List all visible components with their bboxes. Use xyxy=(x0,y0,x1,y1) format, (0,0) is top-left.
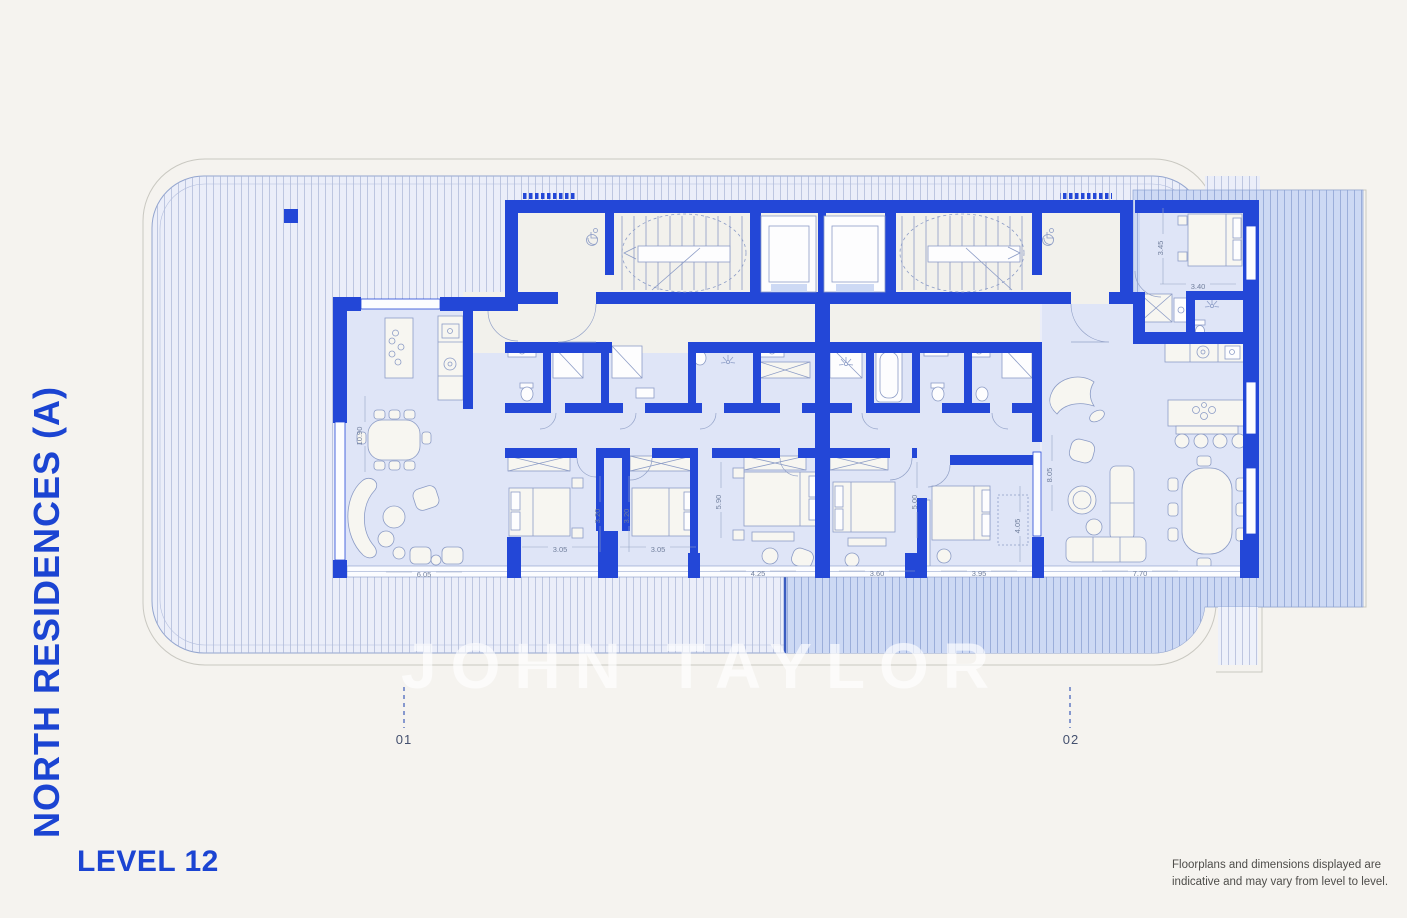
dimension-label: 3.60 xyxy=(870,569,885,578)
bedroom2 xyxy=(630,456,693,536)
dimension-label: 10.90 xyxy=(355,427,364,446)
dimension-label: 6.05 xyxy=(417,570,432,579)
unit-marker-01: 01 xyxy=(396,732,412,747)
dimension-label: 7.70 xyxy=(1133,569,1148,578)
watermark-text: JOHN TAYLOR xyxy=(401,630,1003,702)
dimension-label: 5.00 xyxy=(910,495,919,510)
elevator-shaft xyxy=(824,216,885,292)
kitchen-counter xyxy=(438,316,463,400)
level-label: LEVEL 12 xyxy=(77,845,219,879)
unit-marker-02: 02 xyxy=(1063,732,1079,747)
window-band xyxy=(347,566,1243,577)
dimension-label: 3.05 xyxy=(553,545,568,554)
floor-plan-drawing: 10.90 6.05 3.05 3.20 3.20 3.05 5.90 4.25… xyxy=(0,0,1407,918)
floorplan-page: 10.90 6.05 3.05 3.20 3.20 3.05 5.90 4.25… xyxy=(0,0,1407,918)
dimension-label: 3.20 xyxy=(593,509,602,524)
dimension-label: 4.25 xyxy=(751,569,766,578)
dimension-label: 3.40 xyxy=(1191,282,1206,291)
dimension-label: 4.05 xyxy=(1013,519,1022,534)
disclaimer-line-1: Floorplans and dimensions displayed are xyxy=(1172,857,1388,874)
kitchen-island xyxy=(385,318,413,378)
louver-strip xyxy=(1060,193,1112,201)
disclaimer-line-2: indicative and may vary from level to le… xyxy=(1172,874,1388,891)
louver-strip xyxy=(521,193,577,201)
page-title: NORTH RESIDENCES (A) xyxy=(26,386,68,838)
dimension-label: 3.20 xyxy=(622,509,631,524)
dimension-label: 3.05 xyxy=(651,545,666,554)
dimension-label: 8.05 xyxy=(1045,468,1054,483)
dimension-label: 5.90 xyxy=(714,495,723,510)
dimension-label: 3.95 xyxy=(972,569,987,578)
dimension-label: 3.45 xyxy=(1156,241,1165,256)
disclaimer: Floorplans and dimensions displayed are … xyxy=(1172,857,1388,892)
elevator-shaft xyxy=(761,216,816,292)
terrace-column xyxy=(284,209,298,223)
